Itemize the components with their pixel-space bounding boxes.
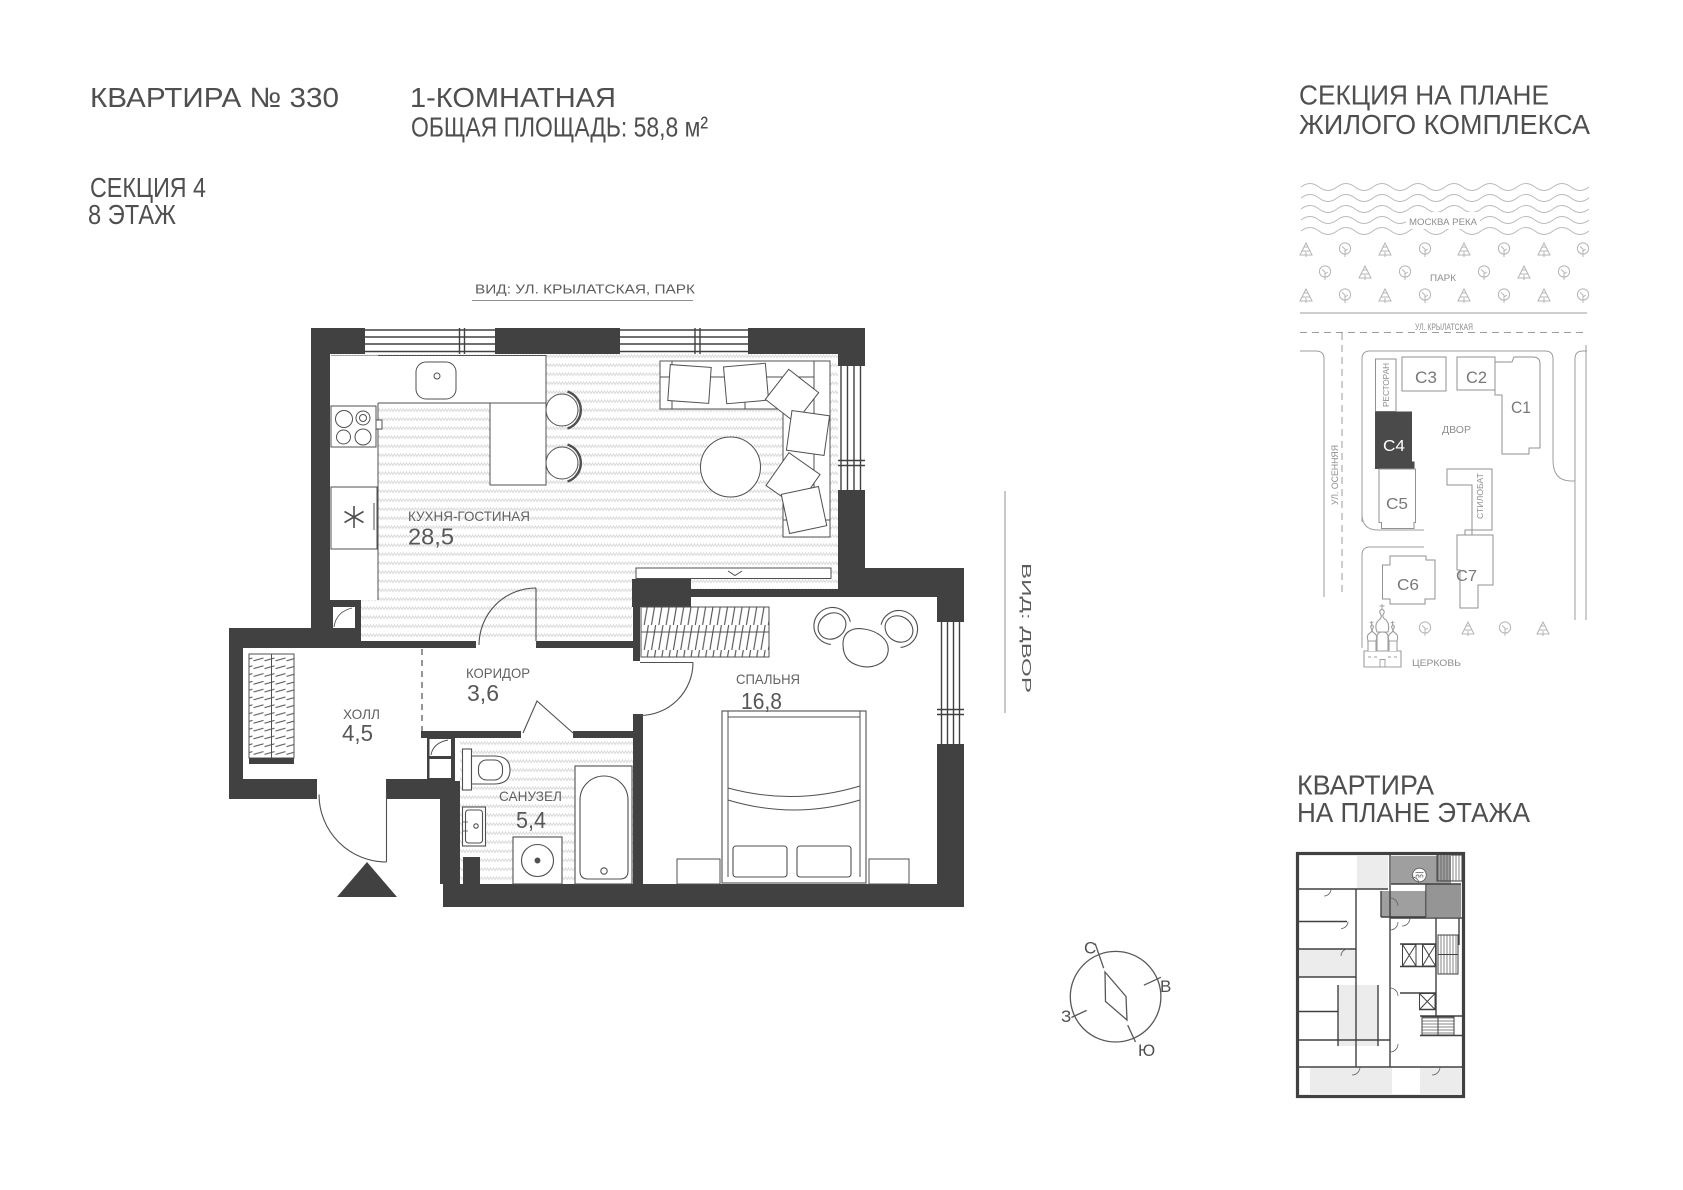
svg-text:C3: C3 (1415, 368, 1437, 387)
svg-text:3,6: 3,6 (467, 680, 499, 706)
svg-text:Ю: Ю (1138, 1041, 1155, 1060)
svg-text:ДВОР: ДВОР (1442, 425, 1471, 436)
svg-text:МОСКВА РЕКА: МОСКВА РЕКА (1409, 217, 1478, 228)
svg-text:C2: C2 (1466, 368, 1487, 387)
svg-text:САНУЗЕЛ: САНУЗЕЛ (499, 789, 562, 804)
svg-text:РЕСТОРАН: РЕСТОРАН (1381, 363, 1391, 407)
svg-text:16,8: 16,8 (741, 688, 782, 714)
svg-text:СЕКЦИЯ НА ПЛАНЕ: СЕКЦИЯ НА ПЛАНЕ (1299, 80, 1549, 111)
svg-text:ЦЕРКОВЬ: ЦЕРКОВЬ (1412, 658, 1461, 669)
svg-text:ВИД: ДВОР: ВИД: ДВОР (1019, 563, 1034, 693)
svg-text:НА ПЛАНЕ ЭТАЖА: НА ПЛАНЕ ЭТАЖА (1297, 797, 1530, 828)
svg-text:С: С (1084, 939, 1096, 958)
svg-text:8 ЭТАЖ: 8 ЭТАЖ (88, 199, 176, 230)
svg-text:C1: C1 (1511, 398, 1531, 417)
svg-text:5,4: 5,4 (516, 807, 546, 833)
svg-text:КУХНЯ-ГОСТИНАЯ: КУХНЯ-ГОСТИНАЯ (408, 509, 530, 524)
svg-text:ПАРК: ПАРК (1430, 273, 1456, 284)
svg-text:C4: C4 (1383, 438, 1405, 455)
svg-text:УЛ. КРЫЛАТСКАЯ: УЛ. КРЫЛАТСКАЯ (1415, 322, 1473, 333)
svg-text:ОБЩАЯ ПЛОЩАДЬ: 58,8 м²: ОБЩАЯ ПЛОЩАДЬ: 58,8 м² (411, 112, 708, 143)
svg-text:ЖИЛОГО КОМПЛЕКСА: ЖИЛОГО КОМПЛЕКСА (1299, 109, 1590, 140)
svg-text:КВАРТИРА № 330: КВАРТИРА № 330 (90, 82, 339, 113)
svg-text:СТИЛОБАТ: СТИЛОБАТ (1475, 473, 1485, 519)
svg-text:C6: C6 (1397, 577, 1419, 594)
svg-text:C5: C5 (1386, 496, 1408, 513)
svg-text:КОРИДОР: КОРИДОР (466, 666, 530, 681)
svg-text:4,5: 4,5 (342, 720, 373, 746)
svg-text:СПАЛЬНЯ: СПАЛЬНЯ (736, 672, 800, 687)
svg-text:1-КОМНАТНАЯ: 1-КОМНАТНАЯ (410, 82, 616, 113)
svg-text:28,5: 28,5 (408, 524, 454, 550)
svg-text:ВИД: УЛ. КРЫЛАТСКАЯ, ПАРК: ВИД: УЛ. КРЫЛАТСКАЯ, ПАРК (475, 282, 695, 297)
svg-text:З: З (1061, 1007, 1071, 1026)
svg-text:КВАРТИРА: КВАРТИРА (1297, 770, 1434, 801)
svg-text:C7: C7 (1456, 568, 1477, 585)
svg-text:В: В (1160, 977, 1171, 996)
svg-text:УЛ. ОСЕННЯЯ: УЛ. ОСЕННЯЯ (1330, 445, 1341, 505)
